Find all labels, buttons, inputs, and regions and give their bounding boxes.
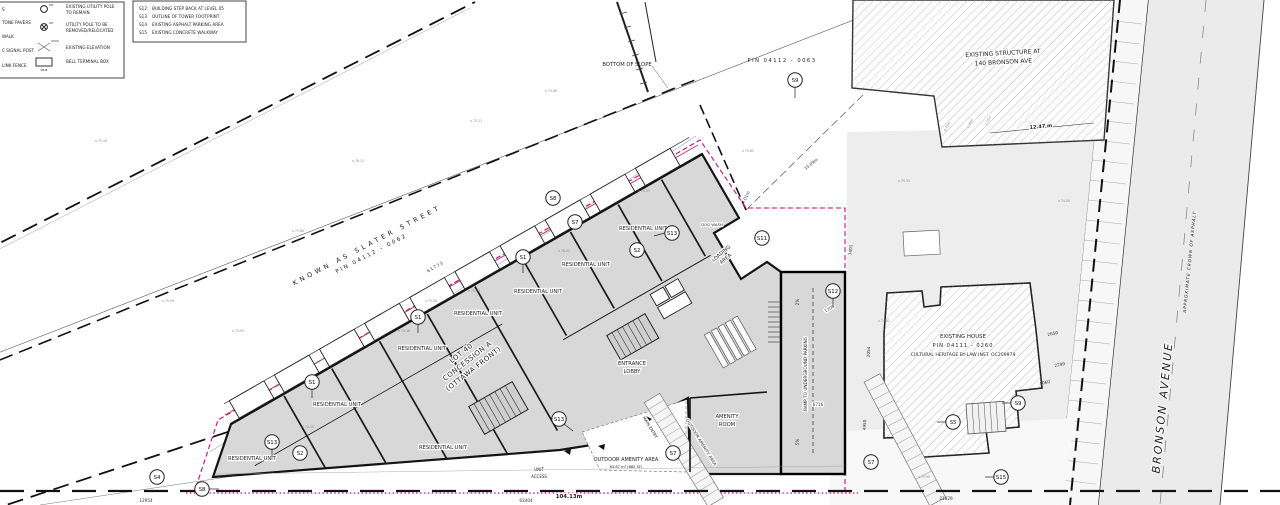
spot-elevation: x 74.38: [398, 329, 410, 333]
legend-symbol-label: EXISTING UTILITY POLE: [66, 4, 115, 9]
entrance-lobby-label-2: LOBBY: [624, 369, 642, 375]
keynote-code: S2: [634, 248, 641, 254]
spot-elevation: x 75.44: [95, 139, 107, 143]
dim-4950: 4950: [862, 419, 868, 430]
residential-unit-label: RESIDENTIAL UNIT: [514, 289, 563, 295]
keynote-code: S1: [415, 315, 422, 321]
keynote-code: S1: [309, 380, 316, 386]
legend-symbol-label: UTILITY POLE TO BE: [66, 22, 108, 27]
utility-pole-removed-tag: UP: [49, 21, 53, 25]
ramp-slope-5pct: 5%: [795, 439, 800, 446]
utility-pole-tag: UP: [49, 3, 53, 7]
keynote-code: S2: [297, 451, 304, 457]
ramp-label: RAMP TO UNDERGROUND PARKING: [803, 337, 808, 411]
keynote-marker: S7: [666, 446, 680, 460]
spot-elevation: x 76.01: [558, 249, 570, 253]
dim-6716: 6716: [813, 402, 824, 407]
keynote-code: S8: [199, 487, 206, 493]
utility-pole-icon: [41, 6, 48, 13]
keynote-code: S7: [670, 451, 677, 457]
bottom-of-slope-label: BOTTOM OF SLOPE: [602, 62, 651, 68]
note-text: OUTLINE OF TOWER FOOTPRINT: [152, 14, 220, 19]
spot-elevation: x 75.73: [468, 289, 480, 293]
note-text: BUILDING STEP BACK AT LEVEL 05: [152, 6, 224, 11]
spot-elevation: x 75.86: [292, 229, 304, 233]
dim-63404: 63404: [519, 498, 533, 503]
residential-unit-label: RESIDENTIAL UNIT: [619, 226, 668, 232]
amenity-room-label-2: ROOM: [719, 422, 735, 428]
bell-box-tag: TB-B: [40, 68, 48, 72]
legend-item-label: WALK: [2, 34, 14, 39]
note-code: S13: [139, 14, 147, 19]
existing-house-label-1: EXISTING HOUSE: [940, 334, 987, 340]
spot-elevation: x 74.27: [638, 189, 650, 193]
unit-access-label-1: UNIT: [534, 467, 544, 472]
spot-elevation: x 75.95: [918, 475, 930, 479]
residential-unit-label: RESIDENTIAL UNIT: [419, 445, 468, 451]
dim-10413: 104.13m: [556, 494, 583, 500]
legend-item-label: S: [2, 7, 5, 12]
spot-elevation: x 74.50: [1058, 199, 1070, 203]
bell-box-icon: [36, 58, 52, 66]
keynote-code: S9: [1015, 401, 1022, 407]
keynote-marker: S7: [864, 455, 878, 469]
residential-unit-label: RESIDENTIAL UNIT: [562, 262, 611, 268]
spot-elevation: x 75.09: [162, 299, 174, 303]
parking-pad: [903, 230, 940, 256]
spot-elevation: x 75.62: [742, 149, 754, 153]
legend-symbol-label: EXISTING ELEVATION: [66, 45, 110, 50]
spot-elevation: x 75.21: [470, 119, 482, 123]
outdoor-amenity-size: 63.67 m² (685 SF): [610, 465, 643, 469]
pin-north-label: PIN 04112 - 0063: [747, 58, 816, 64]
spot-elevation: x 76.12: [352, 159, 364, 163]
keynote-code: S1: [520, 255, 527, 261]
keynote-marker: S7: [568, 215, 582, 229]
ramp-slope-2pct: 2%: [795, 299, 800, 306]
note-code: S12: [139, 6, 147, 11]
legend-symbol-label: BELL TERMINAL BOX: [66, 59, 109, 64]
dog-wash-label: DOG WASH: [701, 222, 723, 227]
keynote-code: S15: [996, 475, 1006, 481]
residential-unit-label: RESIDENTIAL UNIT: [454, 311, 503, 317]
residential-unit-label: RESIDENTIAL UNIT: [228, 456, 277, 462]
spot-elevation: x 75.58: [425, 299, 437, 303]
legend-item-label: LINK FENCE: [2, 63, 27, 68]
elevation-cross-tag: XXXX: [51, 39, 59, 43]
keynote-code: S13: [267, 440, 277, 446]
dim-21829: 21829: [939, 496, 953, 501]
note-text: EXISTING CONCRETE WALKWAY: [152, 30, 218, 35]
existing-house-label-2: PIN 04111 - 0260: [932, 343, 993, 349]
dim-2054: 2054: [866, 346, 872, 357]
keynote-code: S5: [950, 420, 957, 426]
note-text: EXISTING ASPHALT PARKING AREA: [152, 22, 224, 27]
keynote-marker: S2: [630, 243, 644, 257]
dim-7401: 7401: [848, 244, 854, 255]
spot-elevation: x 74.91: [232, 329, 244, 333]
keynote-code: S11: [757, 236, 767, 242]
legend-symbol-label: TO REMAIN: [65, 10, 90, 15]
keynote-code: S13: [554, 417, 564, 423]
keynote-code: S8: [550, 196, 557, 202]
keynote-marker: S2: [293, 446, 307, 460]
amenity-room-label-1: AMENITY: [715, 414, 739, 420]
note-code: S14: [139, 22, 147, 27]
residential-unit-label: RESIDENTIAL UNIT: [398, 346, 447, 352]
unit-access-label-2: ACCESS: [531, 474, 547, 479]
legend-item-label: C SIGNAL POST: [2, 48, 35, 53]
residential-unit-label: RESIDENTIAL UNIT: [313, 402, 362, 408]
keynote-code: S13: [667, 231, 677, 237]
existing-house-label-3: CULTURAL HERITAGE BY-LAW INST. OC209979: [911, 352, 1016, 358]
outdoor-amenity-label: OUTDOOR AMENITY AREA: [594, 457, 659, 463]
keynote-code: S12: [828, 289, 838, 295]
spot-elevation: x 74.15: [302, 425, 314, 429]
keynote-code: S7: [868, 460, 875, 466]
site-plan-canvas: BRONSON AVENUE APPROXIMATE CROWN OF ASPH…: [0, 0, 1280, 505]
entrance-lobby-label-1: ENTRANCE: [618, 361, 646, 367]
keynote-code: S7: [572, 220, 579, 226]
spot-elevation: x 75.33: [898, 179, 910, 183]
dim-12954: 12954: [139, 498, 153, 503]
keynote-marker: S11: [755, 231, 769, 245]
legend-symbol-label: REMOVED/RELOCATED: [66, 28, 113, 33]
legend-item-label: TONE PAVERS: [1, 20, 31, 25]
spot-elevation: x 74.82: [878, 319, 890, 323]
exterior-stairs: [966, 401, 1006, 434]
spot-elevation: x 74.66: [545, 89, 557, 93]
note-code: S15: [139, 30, 147, 35]
keynote-code: S4: [154, 475, 161, 481]
keynote-marker: S8: [546, 191, 560, 205]
keynote-code: S9: [792, 78, 799, 84]
keynote-marker: S4: [150, 470, 164, 484]
